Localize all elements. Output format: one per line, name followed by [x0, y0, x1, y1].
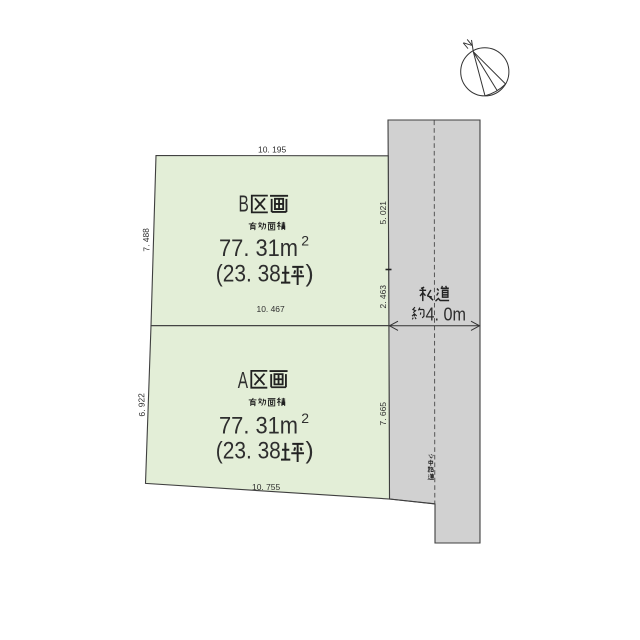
svg-text:5. 021: 5. 021 — [378, 201, 388, 225]
svg-text:6. 922: 6. 922 — [136, 393, 147, 417]
svg-text:10. 467: 10. 467 — [257, 304, 285, 314]
svg-text:(23. 38: (23. 38 — [216, 438, 281, 465]
svg-text:2. 463: 2. 463 — [378, 285, 388, 309]
svg-text:4. 0m: 4. 0m — [426, 305, 467, 325]
svg-text:2: 2 — [301, 410, 309, 426]
svg-text:7. 665: 7. 665 — [378, 402, 388, 426]
svg-text:): ) — [306, 261, 314, 288]
svg-text:A: A — [238, 367, 249, 393]
svg-text:10. 195: 10. 195 — [258, 144, 286, 154]
svg-text:): ) — [306, 438, 314, 465]
svg-text:10. 755: 10. 755 — [252, 482, 280, 492]
svg-text:2: 2 — [301, 233, 309, 249]
svg-text:(23. 38: (23. 38 — [216, 261, 281, 288]
svg-text:77. 31m: 77. 31m — [219, 235, 298, 262]
svg-text:7. 488: 7. 488 — [141, 228, 152, 252]
svg-text:B: B — [239, 191, 249, 217]
svg-text:77. 31m: 77. 31m — [219, 413, 298, 440]
